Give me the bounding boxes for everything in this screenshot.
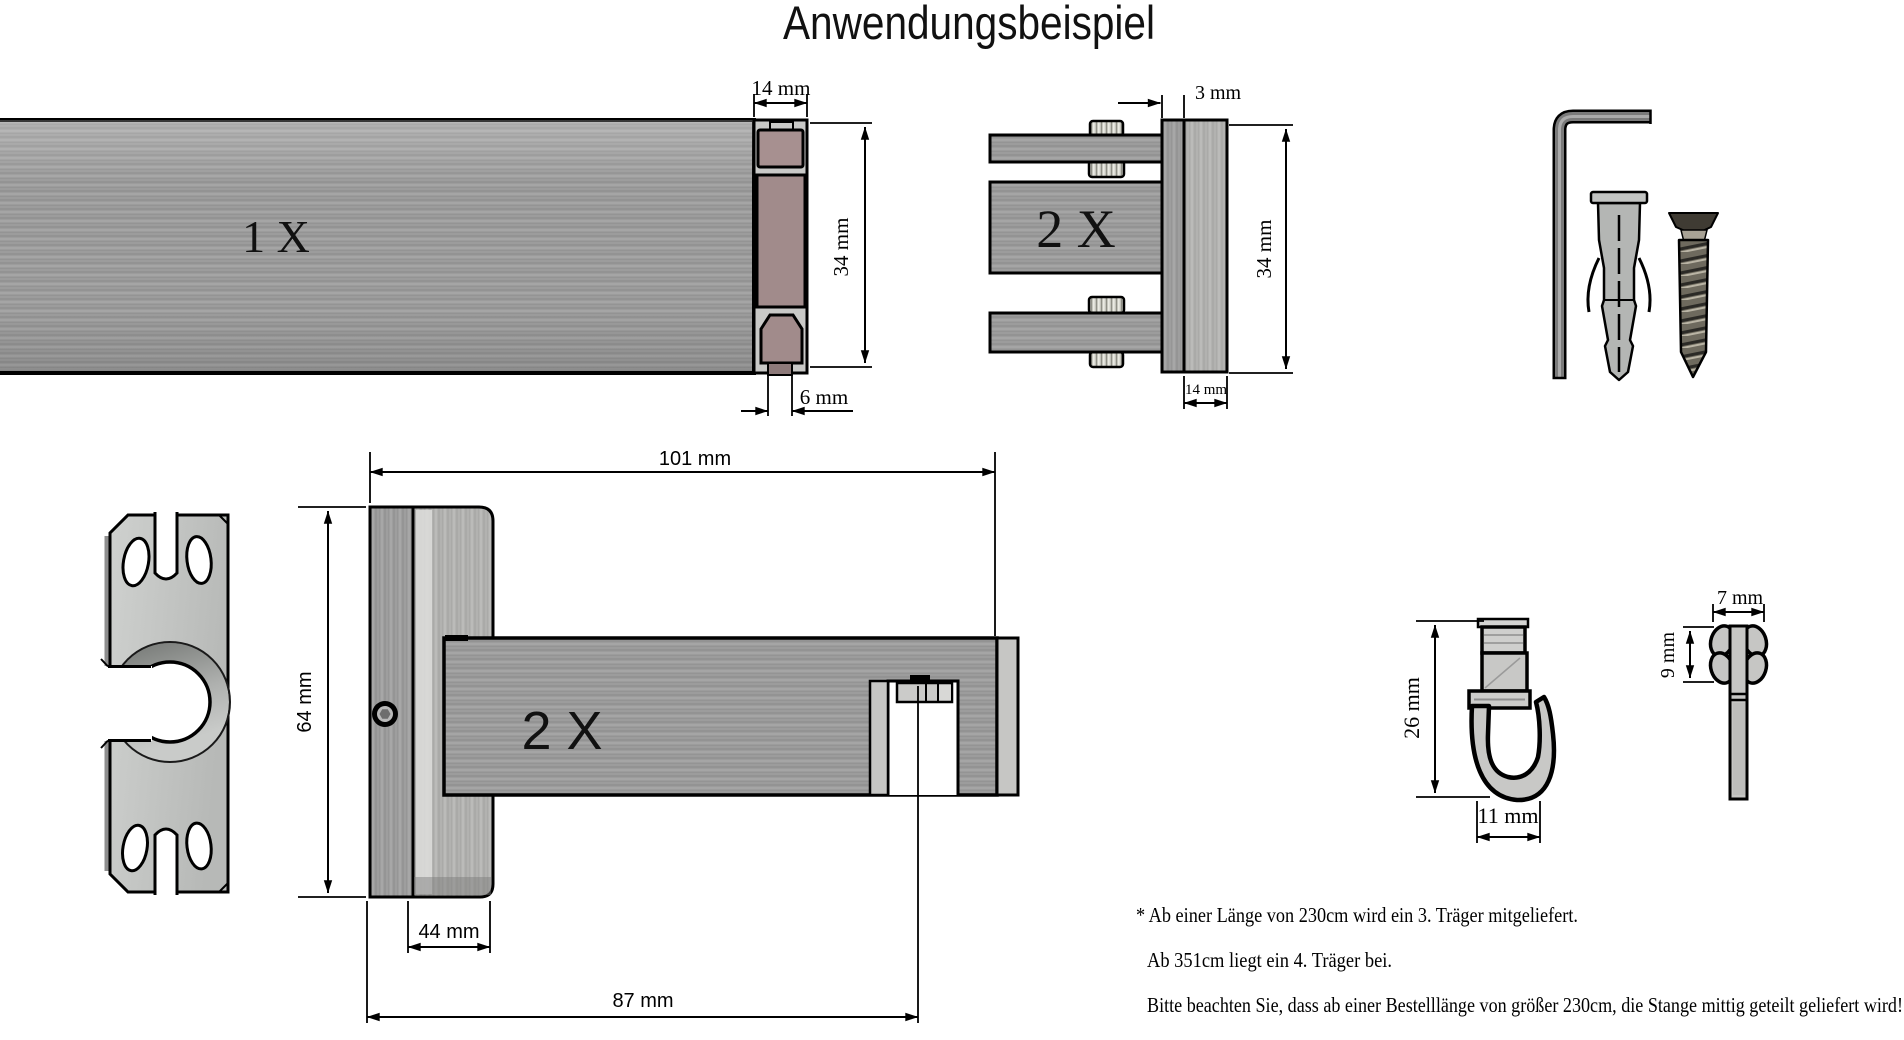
dim-label: 64 mm [294,671,316,732]
plate-bottom-slot [155,829,177,895]
bracket-wall-plate-front [370,507,413,897]
dim-label: 44 mm [418,921,479,943]
claw-leg [870,681,888,795]
bracket-arm-top [990,135,1162,162]
dim-label: 6 mm [800,385,848,409]
wall-anchor-icon [1588,192,1650,380]
dim-bracket-height: 64 mm [294,507,366,897]
plate-top-slot [155,512,177,579]
bracket-plate-outer [1184,120,1227,372]
mounting-plate-figure [96,512,230,895]
rail-end-cap [754,120,807,375]
cap-insert-top [758,130,803,167]
footnote-line-2: Ab 351cm liegt ein 4. Träger bei. [1147,948,1392,972]
dim-label: 3 mm [1195,82,1242,104]
arm-top-notch [445,635,468,641]
dim-bracket-gap: 3 mm [1118,82,1241,118]
bracket-end-figure: 2 X 3 mm 34 mm 14 mm [990,82,1293,409]
rail-figure: 1 X 14 mm 34 mm 6 mm [0,76,872,416]
bracket-side-quantity-label: 2 X [521,701,602,761]
dim-rail-height: 34 mm [810,123,872,367]
technical-drawing-page: Anwendungsbeispiel 1 X 14 mm 34 mm [0,0,1904,1040]
cap-insert-middle [757,175,805,307]
cap-bottom-tab [768,363,792,375]
arm-end-strip [997,638,1018,795]
glider-head [1482,627,1525,653]
page-title: Anwendungsbeispiel [783,0,1155,49]
dim-glider-width: 11 mm [1477,801,1540,843]
cap-insert-bottom [761,315,802,363]
drawing-svg: Anwendungsbeispiel 1 X 14 mm 34 mm [0,0,1904,1040]
bracket-side-figure: 2 X 101 mm 64 mm 44 mm 87 mm [294,448,1018,1023]
dim-label: 11 mm [1478,803,1539,828]
dim-rail-groove: 6 mm [741,376,853,416]
dim-label: 7 mm [1717,587,1764,609]
socket-screw [372,701,398,727]
end-stop-figure: 7 mm 9 mm [1657,587,1770,799]
dim-label: 34 mm [1252,220,1276,279]
dim-bracket-plate-depth: 44 mm [408,901,490,953]
dim-label: 101 mm [659,448,731,470]
dim-label: 14 mm [752,76,811,100]
mounting-hardware [1553,110,1719,381]
dim-rail-width: 14 mm [752,76,811,117]
dim-label: 9 mm [1657,632,1679,679]
rail-shading [0,120,754,373]
dim-bracket-end-height: 34 mm [1229,125,1293,373]
mounting-screw-icon [1669,213,1718,377]
footnote-line-3: Bitte beachten Sie, dass ab einer Bestel… [1147,993,1903,1017]
footnotes: * Ab einer Länge von 230cm wird ein 3. T… [1136,903,1903,1017]
dim-bracket-end-depth: 14 mm [1184,376,1227,409]
glider-figure: 26 mm 11 mm [1399,619,1554,843]
dim-end-stop-width: 7 mm [1713,587,1764,622]
dim-label: 14 mm [1185,382,1227,398]
dim-label: 34 mm [829,218,853,277]
glider-hook [1472,697,1554,800]
dim-label: 26 mm [1399,677,1424,739]
dim-label: 87 mm [612,990,673,1012]
footnote-line-1: * Ab einer Länge von 230cm wird ein 3. T… [1136,903,1578,927]
bracket-plate-inner [1162,120,1184,372]
bracket-end-quantity-label: 2 X [1036,199,1116,259]
dim-end-stop-height: 9 mm [1657,627,1714,682]
bracket-arm-bottom [990,313,1162,352]
rail-quantity-label: 1 X [242,211,310,262]
